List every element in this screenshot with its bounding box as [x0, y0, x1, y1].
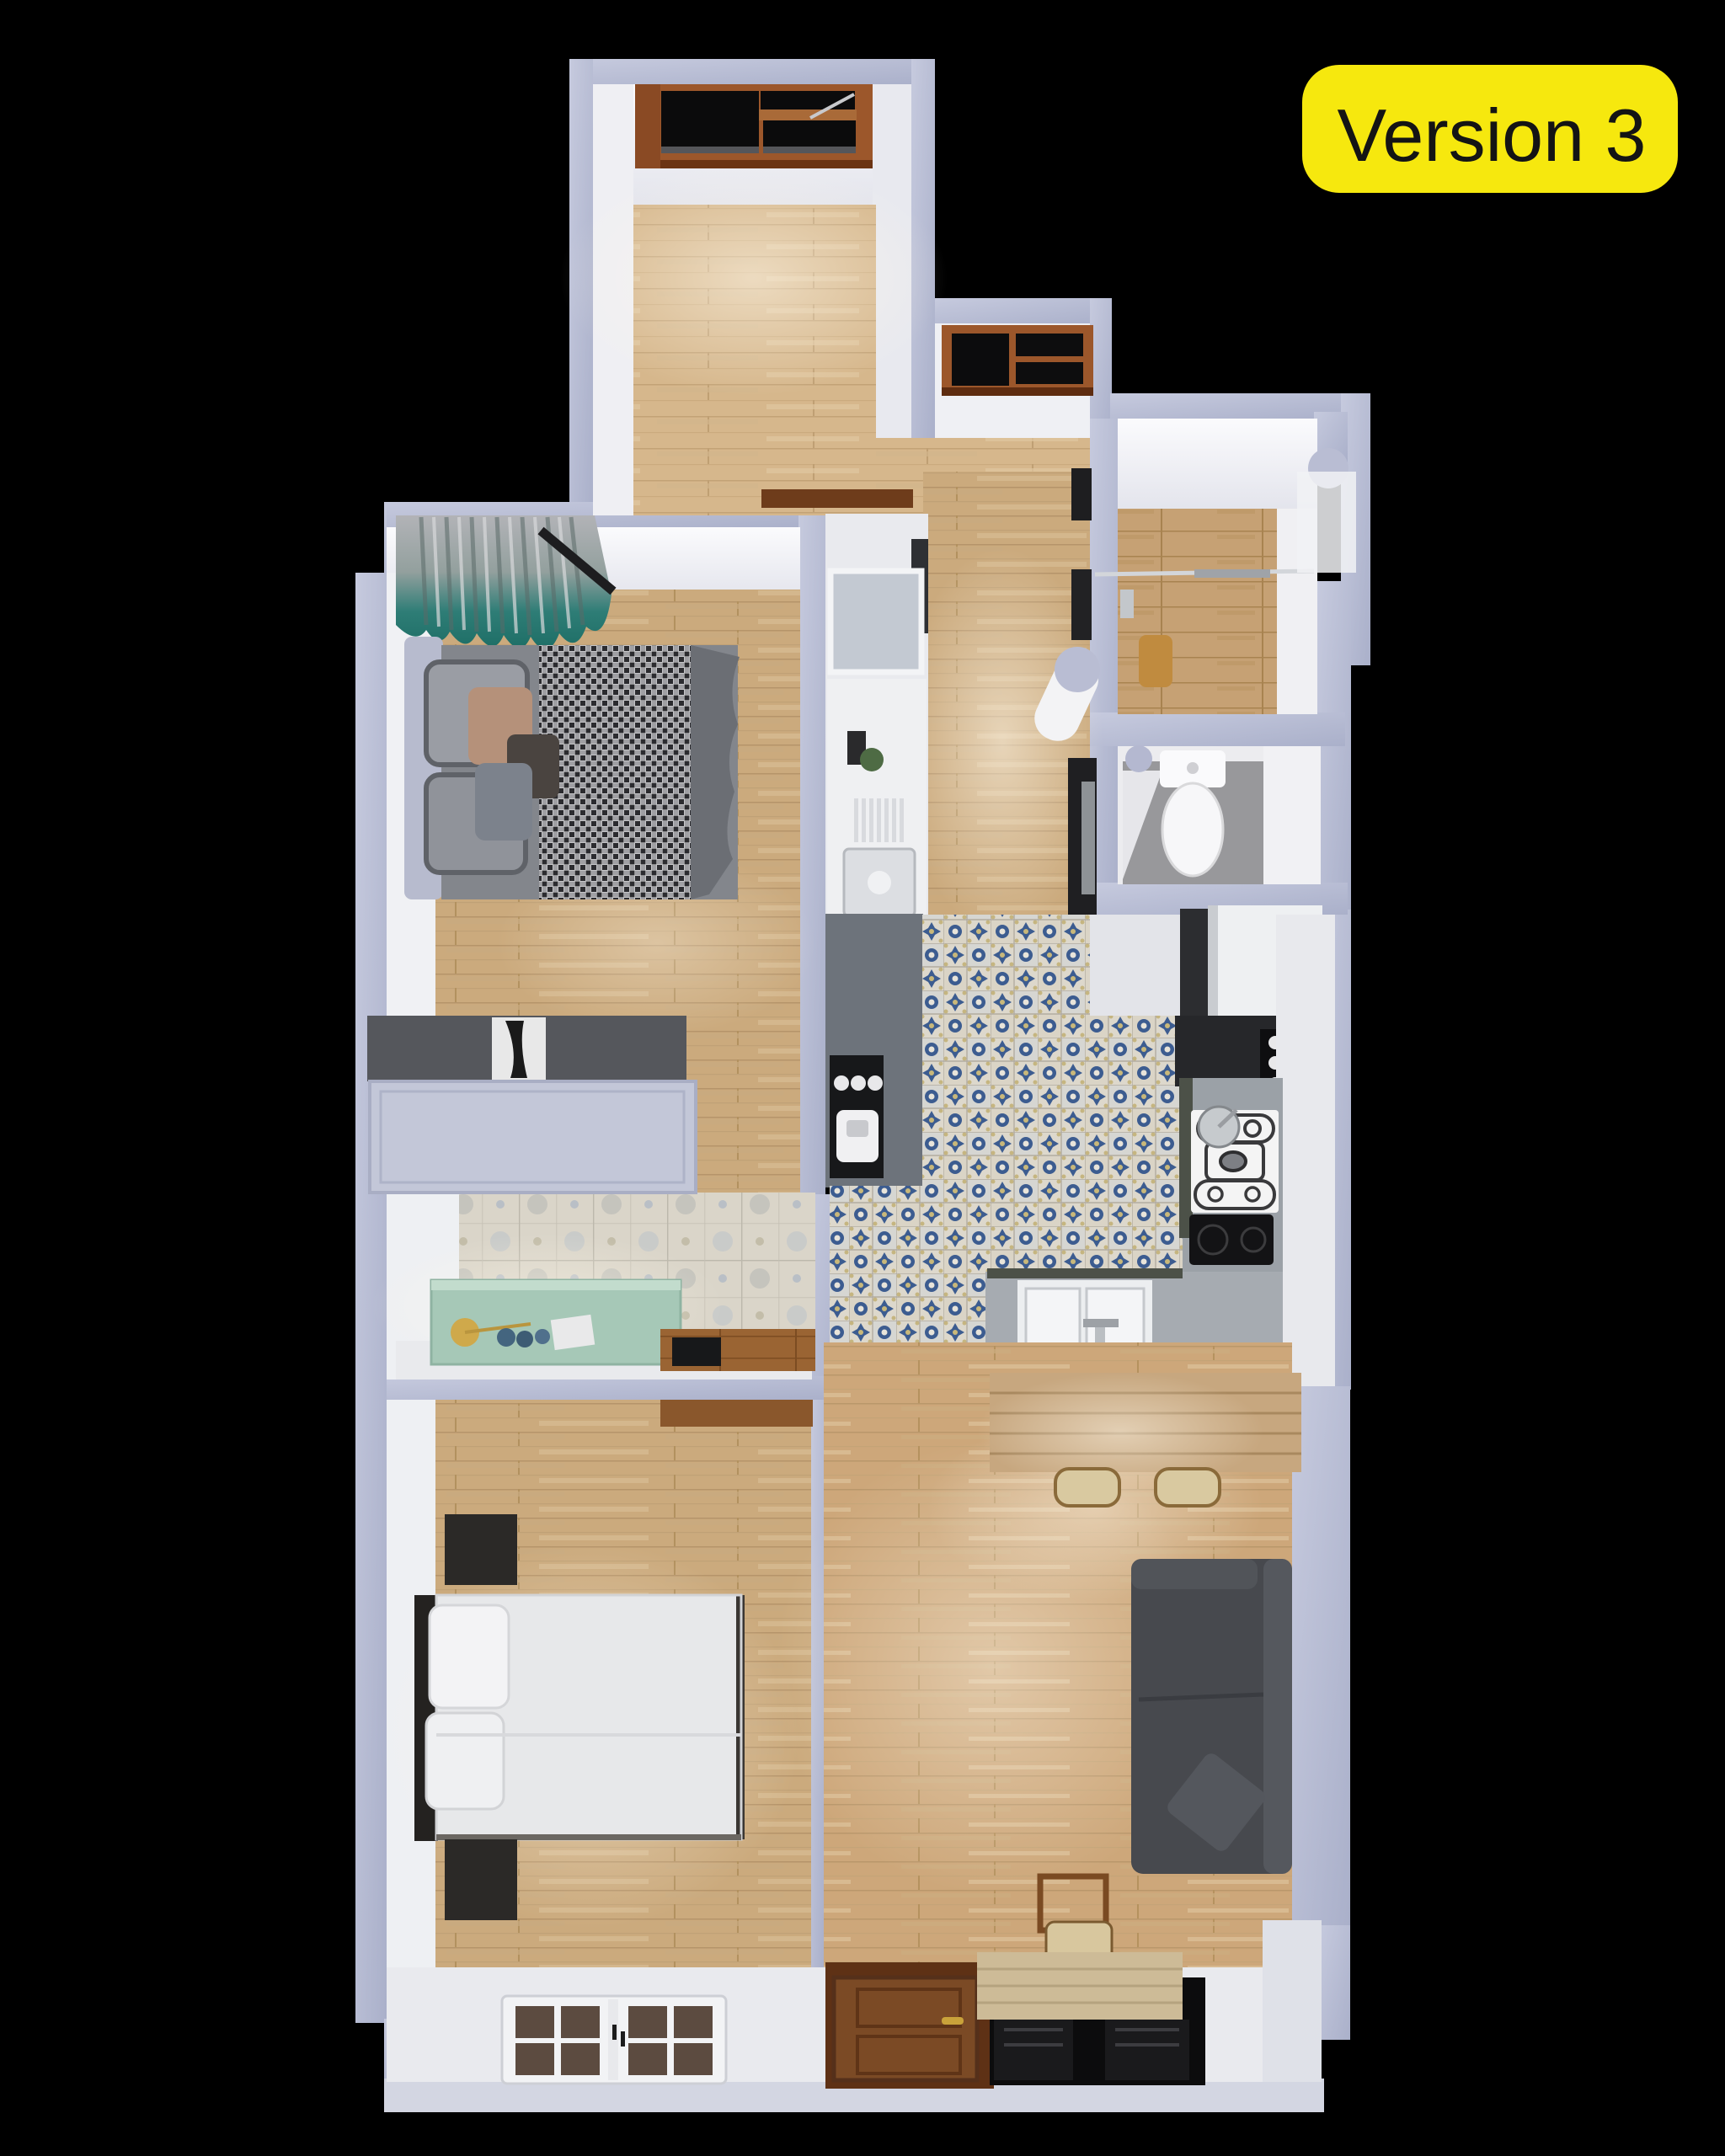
svg-text:Version 3: Version 3 — [1338, 93, 1647, 177]
